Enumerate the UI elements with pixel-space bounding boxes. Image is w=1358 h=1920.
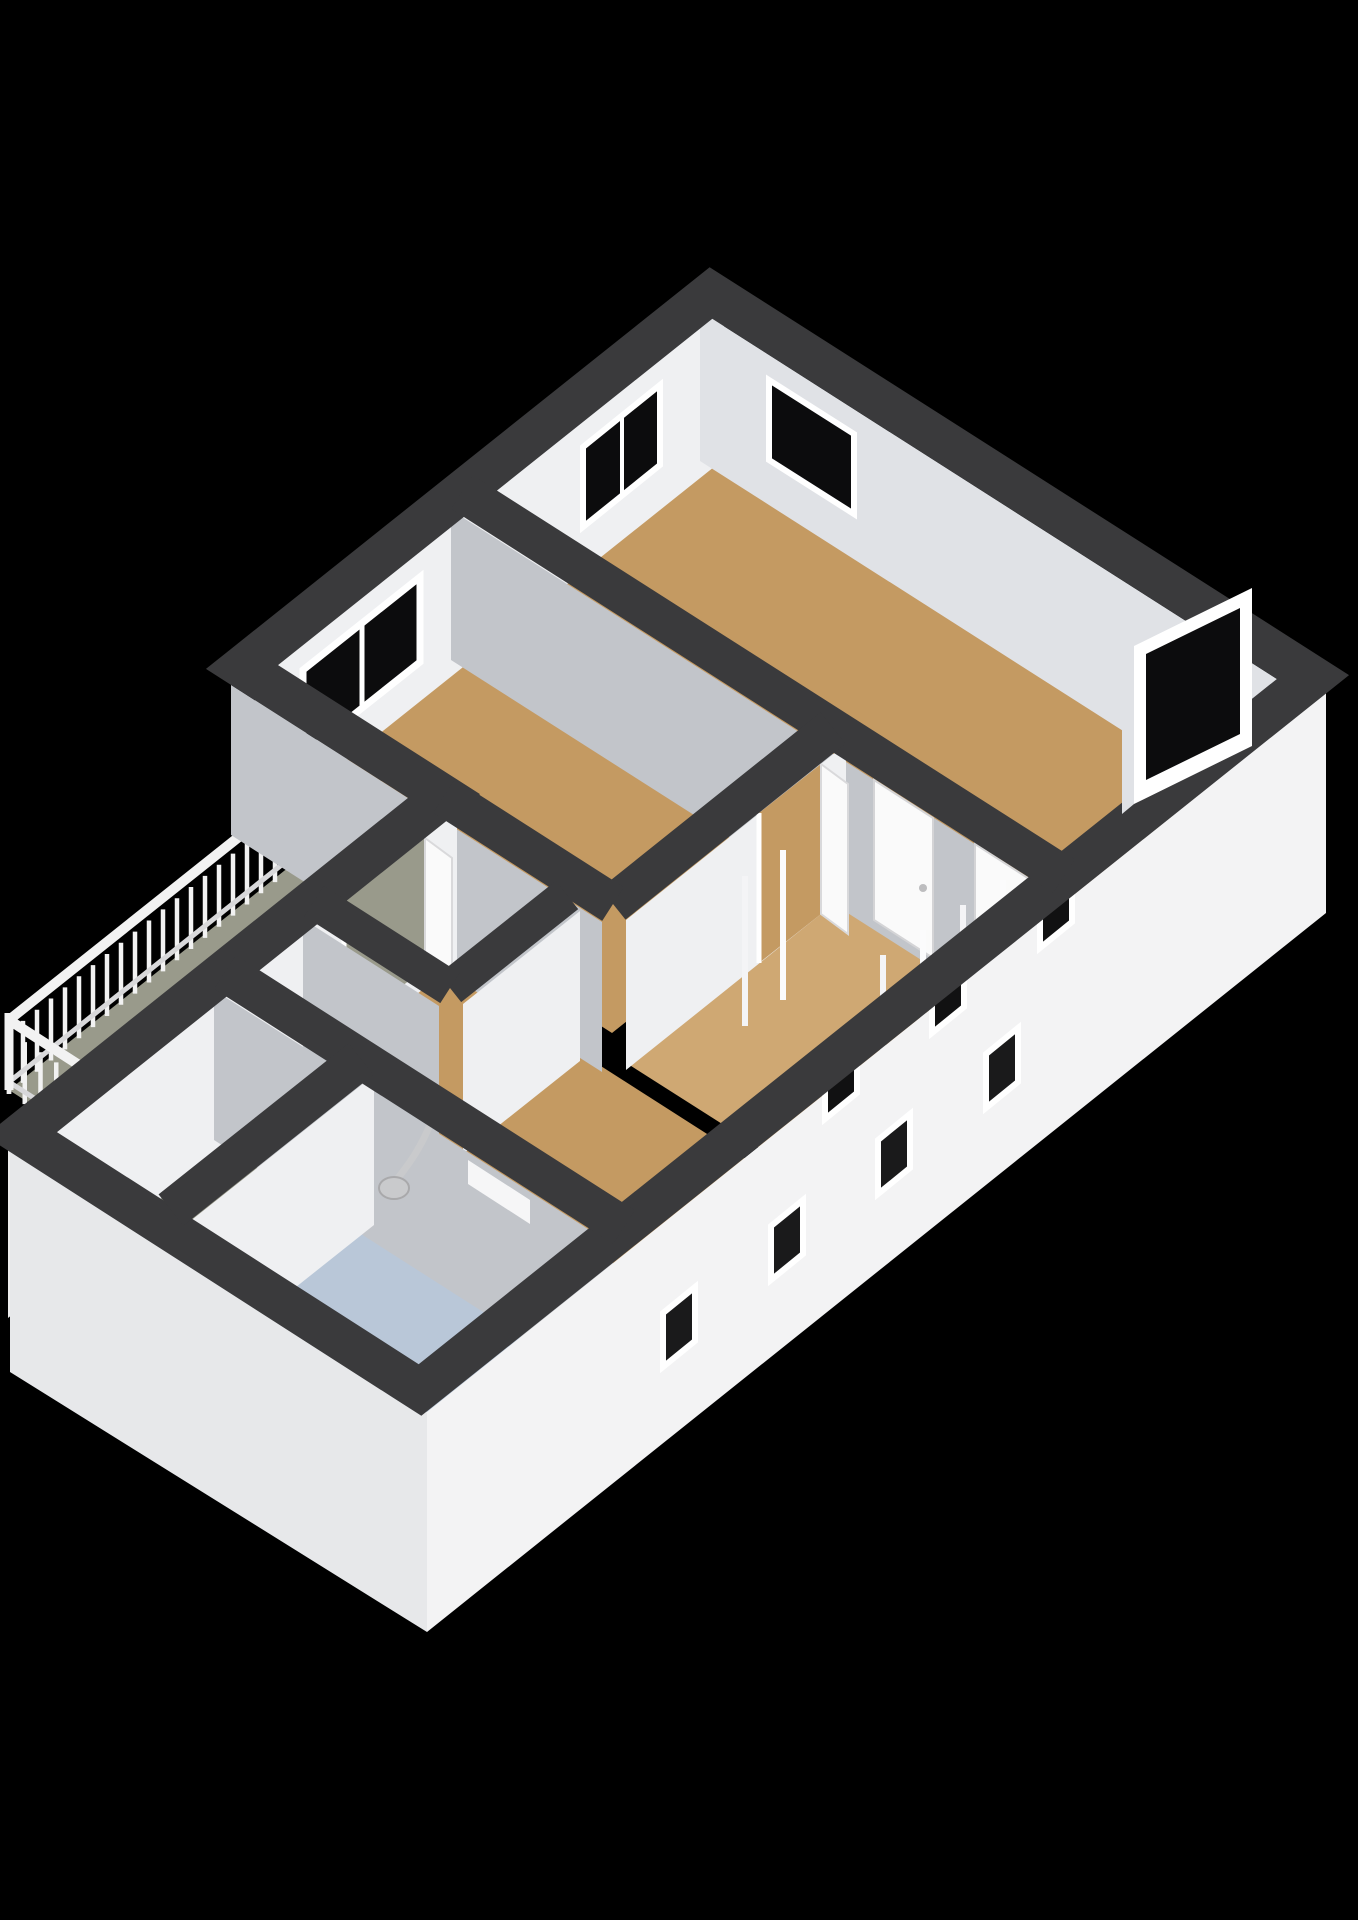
window-reveal [1122,646,1134,814]
shower-head [379,1177,409,1199]
door-handle [919,884,927,892]
sliding-door-edge [742,876,748,1026]
floorplan-3d-render [0,0,1358,1920]
floorplan-stage [0,0,1358,1920]
open-door-leaf [821,764,848,934]
sliding-door-edge [780,850,786,1000]
